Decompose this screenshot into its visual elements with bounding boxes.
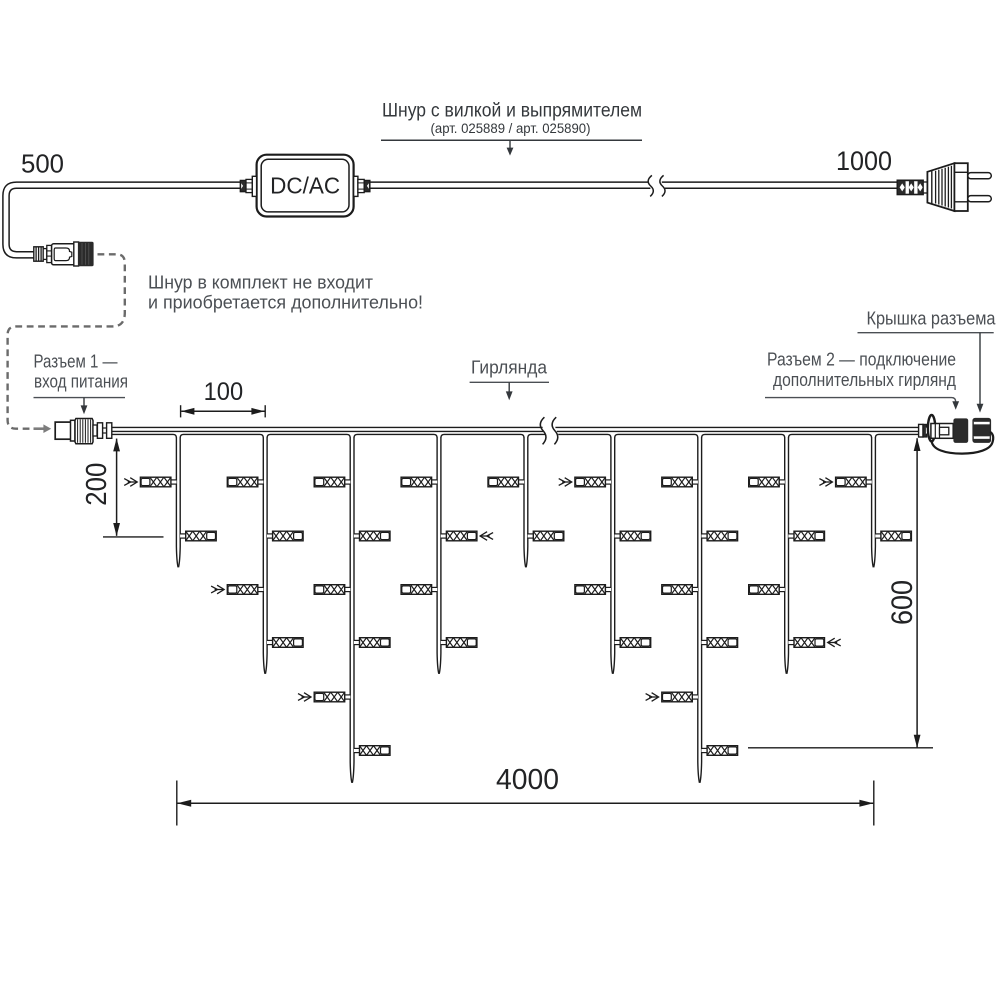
svg-text:500: 500 xyxy=(21,148,64,178)
svg-text:100: 100 xyxy=(204,378,244,406)
svg-text:Шнур в комплект не входит: Шнур в комплект не входит xyxy=(148,271,373,292)
svg-text:DC/AC: DC/AC xyxy=(270,173,340,199)
svg-text:200: 200 xyxy=(81,463,113,506)
svg-text:Разъем 1 —: Разъем 1 — xyxy=(34,350,118,371)
svg-text:Крышка разъема: Крышка разъема xyxy=(867,308,997,329)
svg-text:1000: 1000 xyxy=(836,146,892,176)
svg-text:4000: 4000 xyxy=(496,764,559,796)
svg-text:Шнур с вилкой и выпрямителем: Шнур с вилкой и выпрямителем xyxy=(382,99,642,121)
svg-text:Разъем 2 — подключение: Разъем 2 — подключение xyxy=(767,348,956,369)
svg-text:Гирлянда: Гирлянда xyxy=(471,356,548,377)
svg-text:и приобретается дополнительно!: и приобретается дополнительно! xyxy=(148,291,423,312)
svg-text:(арт. 025889 / арт. 025890): (арт. 025889 / арт. 025890) xyxy=(431,121,591,136)
svg-text:600: 600 xyxy=(886,580,919,625)
svg-text:вход питания: вход питания xyxy=(34,370,128,391)
svg-text:дополнительных гирлянд: дополнительных гирлянд xyxy=(773,369,956,390)
